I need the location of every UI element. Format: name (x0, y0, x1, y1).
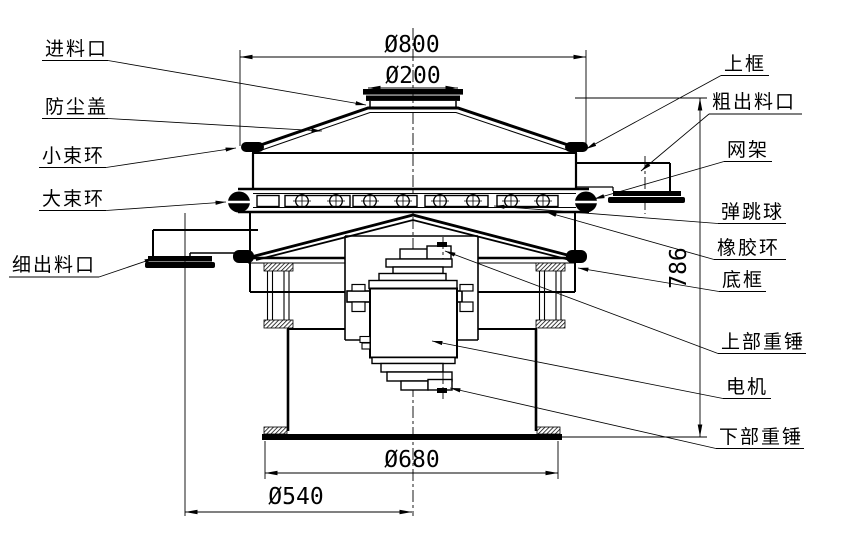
svg-text:细出料口: 细出料口 (12, 254, 96, 276)
spring-right (536, 263, 565, 328)
label-upper-weight: 上部重锤 (445, 251, 806, 354)
svg-text:下部重锤: 下部重锤 (719, 426, 803, 448)
svg-text:弹跳球: 弹跳球 (721, 201, 784, 223)
small-clamp-ring (241, 142, 588, 152)
svg-text:橡胶环: 橡胶环 (717, 237, 780, 259)
svg-text:粗出料口: 粗出料口 (712, 91, 796, 113)
dim-outer-diameter-text: Ø800 (384, 32, 439, 58)
label-large-clamp-ring: 大束环 (39, 188, 226, 211)
motor (360, 289, 457, 364)
svg-text:底框: 底框 (722, 269, 764, 291)
upper-frame (252, 153, 577, 189)
svg-text:网架: 网架 (727, 139, 769, 161)
dim-inlet-diameter: Ø200 (368, 63, 458, 89)
svg-text:上部重锤: 上部重锤 (721, 331, 805, 353)
svg-text:电机: 电机 (726, 376, 768, 398)
label-small-clamp-ring: 小束环 (39, 145, 236, 168)
label-screen-frame: 网架 (594, 139, 772, 199)
lower-weight (381, 364, 452, 400)
spring-left (264, 263, 293, 328)
svg-text:防尘盖: 防尘盖 (45, 96, 108, 118)
rubber-ring-right (566, 250, 587, 263)
svg-text:进料口: 进料口 (45, 38, 108, 60)
svg-text:上框: 上框 (724, 53, 766, 75)
dim-height-text: 786 (666, 247, 692, 289)
base-flange (262, 434, 562, 440)
label-fine-outlet: 细出料口 (9, 254, 155, 277)
rubber-ring-left (233, 250, 254, 263)
label-dust-cover: 防尘盖 (42, 96, 322, 131)
label-coarse-outlet: 粗出料口 (641, 91, 802, 171)
dim-flange-diameter-text: Ø540 (268, 484, 323, 510)
diagram-canvas: Ø800 Ø200 786 Ø680 Ø540 进料口 防尘盖 小束环 (0, 0, 860, 539)
svg-text:大束环: 大束环 (42, 188, 105, 210)
dim-base-diameter-text: Ø680 (384, 447, 439, 473)
svg-text:小束环: 小束环 (42, 145, 105, 167)
vibrating-sieve-technical-drawing: Ø800 Ø200 786 Ø680 Ø540 进料口 防尘盖 小束环 (0, 0, 860, 539)
dim-base-diameter: Ø680 (265, 441, 558, 479)
dim-inlet-diameter-text: Ø200 (385, 63, 440, 89)
label-feed-inlet: 进料口 (42, 38, 366, 105)
